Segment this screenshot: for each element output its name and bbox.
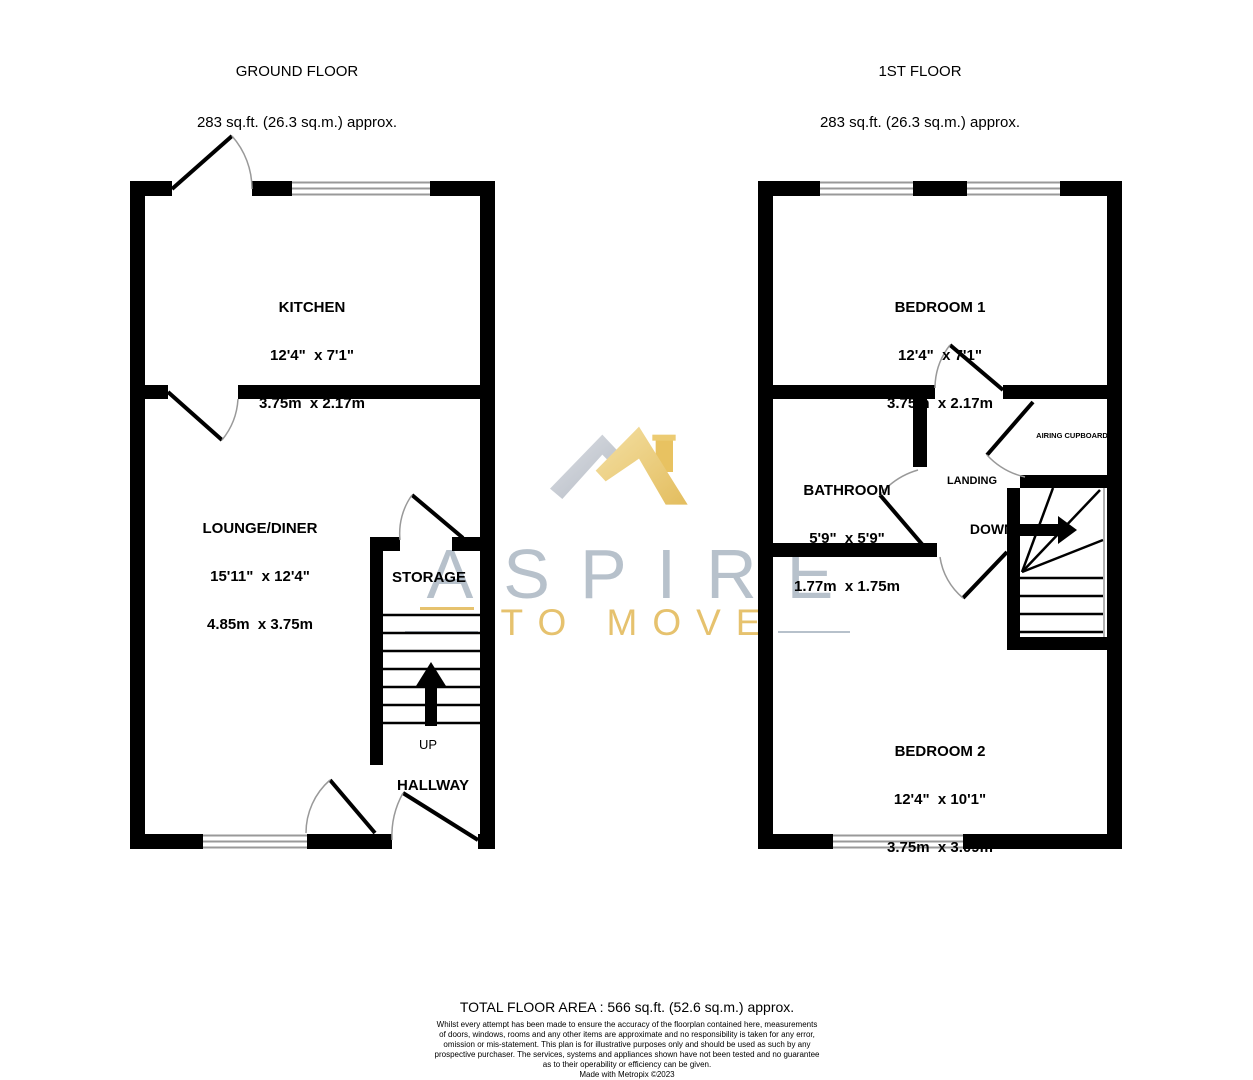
kitchen-metric: 3.75m x 2.17m: [259, 396, 365, 412]
lounge-label: LOUNGE/DINER 15'11" x 12'4" 4.85m x 3.75…: [202, 489, 317, 665]
metropix-credit: Made with Metropix ©2023: [435, 1070, 820, 1080]
ground-floor-area: 283 sq.ft. (26.3 sq.m.) approx.: [197, 114, 397, 131]
airing-cupboard-label: AIRING CUPBOARD: [1036, 431, 1108, 440]
kitchen-name: KITCHEN: [259, 300, 365, 316]
disclaimer-line: prospective purchaser. The services, sys…: [435, 1050, 820, 1060]
disclaimer-line: of doors, windows, rooms and any other i…: [435, 1030, 820, 1040]
bathroom-name: BATHROOM: [794, 483, 900, 499]
disclaimer: Whilst every attempt has been made to en…: [435, 1020, 820, 1080]
lounge-name: LOUNGE/DINER: [202, 521, 317, 537]
kitchen-imperial: 12'4" x 7'1": [259, 348, 365, 364]
first-floor-area: 283 sq.ft. (26.3 sq.m.) approx.: [820, 114, 1020, 131]
hallway-label: HALLWAY: [397, 778, 469, 794]
ground-floor-title: GROUND FLOOR: [197, 63, 397, 80]
ground-floor-header: GROUND FLOOR 283 sq.ft. (26.3 sq.m.) app…: [197, 29, 397, 165]
bedroom2-label: BEDROOM 2 12'4" x 10'1" 3.75m x 3.09m: [887, 712, 993, 888]
bedroom2-imperial: 12'4" x 10'1": [887, 792, 993, 808]
total-floor-area: TOTAL FLOOR AREA : 566 sq.ft. (52.6 sq.m…: [460, 999, 794, 1015]
labels-layer: GROUND FLOOR 283 sq.ft. (26.3 sq.m.) app…: [0, 0, 1253, 1080]
disclaimer-line: Whilst every attempt has been made to en…: [435, 1020, 820, 1030]
kitchen-label: KITCHEN 12'4" x 7'1" 3.75m x 2.17m: [259, 268, 365, 444]
bedroom2-metric: 3.75m x 3.09m: [887, 840, 993, 856]
first-floor-header: 1ST FLOOR 283 sq.ft. (26.3 sq.m.) approx…: [820, 29, 1020, 165]
bathroom-label: BATHROOM 5'9" x 5'9" 1.77m x 1.75m: [794, 451, 900, 627]
landing-label: LANDING: [947, 475, 997, 487]
bedroom1-label: BEDROOM 1 12'4" x 7'1" 3.75m x 2.17m: [887, 268, 993, 444]
bedroom1-metric: 3.75m x 2.17m: [887, 396, 993, 412]
disclaimer-line: omission or mis-statement. This plan is …: [435, 1040, 820, 1050]
first-floor-title: 1ST FLOOR: [820, 63, 1020, 80]
bathroom-metric: 1.77m x 1.75m: [794, 579, 900, 595]
lounge-metric: 4.85m x 3.75m: [202, 617, 317, 633]
down-label: DOWN: [970, 521, 1014, 537]
lounge-imperial: 15'11" x 12'4": [202, 569, 317, 585]
bedroom2-name: BEDROOM 2: [887, 744, 993, 760]
bedroom1-imperial: 12'4" x 7'1": [887, 348, 993, 364]
disclaimer-line: as to their operability or efficiency ca…: [435, 1060, 820, 1070]
bathroom-imperial: 5'9" x 5'9": [794, 531, 900, 547]
storage-label: STORAGE: [392, 570, 466, 586]
up-label: UP: [419, 737, 437, 752]
bedroom1-name: BEDROOM 1: [887, 300, 993, 316]
